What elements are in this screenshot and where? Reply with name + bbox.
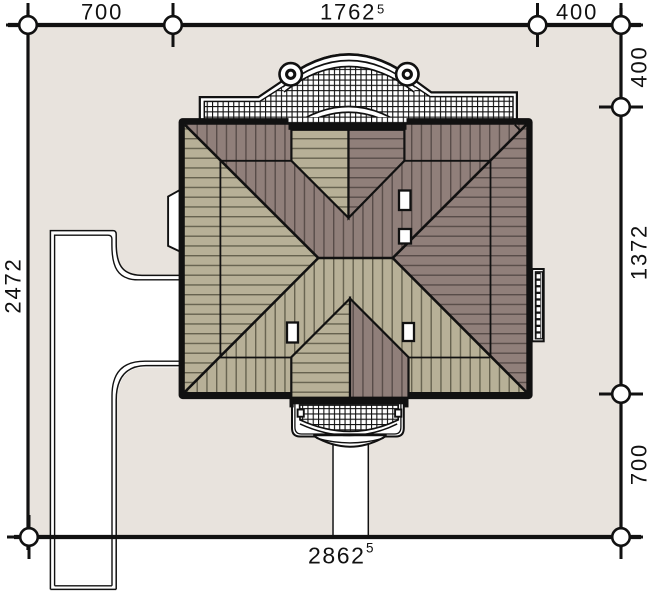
svg-text:700: 700 <box>81 0 123 25</box>
svg-text:2862: 2862 <box>308 543 366 569</box>
svg-text:5: 5 <box>366 541 374 556</box>
svg-text:700: 700 <box>627 443 652 485</box>
svg-text:5: 5 <box>377 2 384 17</box>
svg-text:1372: 1372 <box>627 224 652 280</box>
svg-text:1762: 1762 <box>320 0 376 25</box>
svg-text:2472: 2472 <box>1 257 26 313</box>
svg-text:400: 400 <box>556 0 598 25</box>
svg-text:400: 400 <box>627 45 652 87</box>
